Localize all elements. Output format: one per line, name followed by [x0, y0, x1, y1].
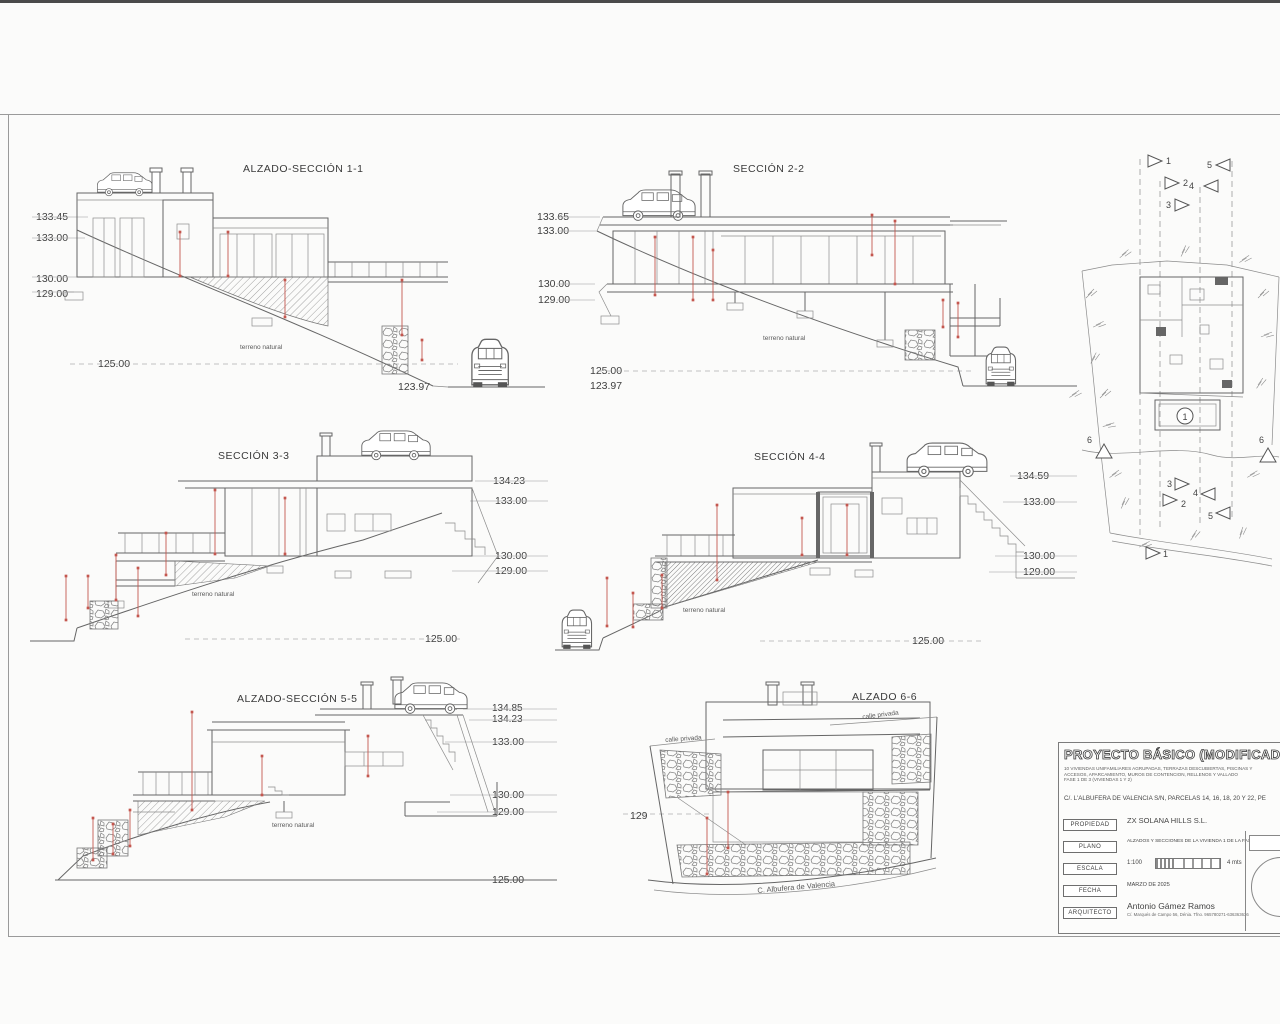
- titleblock-row-escala: ESCALA 1:100 4 mts: [1063, 857, 1117, 875]
- terrain-slope: [597, 231, 963, 386]
- sheet-frame-top: [0, 114, 1280, 115]
- stone-retaining-wall: [90, 601, 118, 629]
- terrain-slope: [77, 230, 433, 386]
- car-icon: [623, 190, 695, 220]
- section-3-drawing: [30, 428, 550, 656]
- marker-number: 2: [1181, 499, 1186, 509]
- car-icon: [395, 683, 467, 713]
- marker-number: 2: [1183, 178, 1188, 188]
- car-icon: [472, 339, 508, 387]
- terrain-hatch: [665, 562, 818, 607]
- car-icon: [562, 610, 591, 649]
- stone-wall: [863, 792, 918, 845]
- titleblock-row-propiedad: PROPIEDAD ZX SOLANA HILLS S.L.: [1063, 813, 1117, 831]
- marker-number: 3: [1167, 479, 1172, 489]
- marker-number: 3: [1166, 200, 1171, 210]
- marker-number: 6: [1087, 435, 1092, 445]
- red-dimensions: [655, 215, 958, 337]
- stone-wall: [892, 734, 931, 784]
- car-icon: [907, 443, 987, 477]
- titleblock-divider: [1245, 831, 1246, 931]
- stone-wall: [651, 558, 667, 608]
- terrace-railing: [143, 772, 208, 795]
- plano-value: ALZADOS Y SECCIONES DE LA VIVIENDA 1 DE …: [1127, 839, 1260, 844]
- titleblock-row-arquitecto: ARQUITECTO Antonio Gámez Ramos C/. Marqu…: [1063, 901, 1117, 919]
- car-icon: [362, 431, 430, 460]
- stair-shaft: [950, 284, 1000, 356]
- car-icon: [97, 173, 152, 196]
- drawing-sheet: ALZADO-SECCIÓN 1-1 133.45 133.00 130.00 …: [0, 0, 1280, 1024]
- fecha-value: MARZO DE 2025: [1127, 882, 1170, 888]
- stone-wall: [633, 604, 663, 620]
- section-2-drawing: [555, 158, 1077, 400]
- marker-number: 1: [1166, 156, 1171, 166]
- site-plan: 1 1 2 3 4 5 3 2 4 5 1 6 6: [1082, 145, 1280, 570]
- stone-base: [677, 842, 910, 877]
- retaining-l-wall: [405, 782, 497, 816]
- section-4-drawing: [555, 428, 1080, 658]
- sheet-frame-bottom: [8, 936, 1280, 937]
- scan-edge-bar: [0, 0, 1280, 3]
- titleblock-stamp-circle: [1251, 857, 1280, 917]
- terrain-slope: [77, 513, 442, 628]
- project-title: PROYECTO BÁSICO (MODIFICADO 1): [1064, 747, 1280, 762]
- pool: 1: [1155, 400, 1220, 430]
- stairs: [423, 715, 495, 812]
- vegetation-ticks: [1069, 245, 1274, 551]
- terrain-hatch: [190, 277, 328, 326]
- propiedad-value: ZX SOLANA HILLS S.L.: [1127, 816, 1207, 825]
- escala-mts: 4 mts: [1227, 860, 1242, 866]
- terrain-hatch: [138, 801, 265, 835]
- chimney-icon: [150, 168, 162, 193]
- stone-wall: [660, 750, 721, 798]
- scale-bar: [1155, 858, 1221, 869]
- section-6-drawing: [618, 662, 950, 912]
- section-cut-lines: [1140, 159, 1232, 535]
- stone-retaining-wall: [905, 330, 935, 360]
- house-plan: [1140, 277, 1243, 397]
- section-1-drawing: [30, 158, 545, 400]
- project-address: C/. L'ALBUFERA DE VALENCIA S/N, PARCELAS…: [1064, 795, 1266, 802]
- marker-number: 5: [1207, 160, 1212, 170]
- marker-number: 1: [1163, 549, 1168, 559]
- marker-number: 4: [1193, 488, 1198, 498]
- fecha-label: FECHA: [1063, 885, 1117, 897]
- stone-retaining-wall: [382, 326, 408, 374]
- marker-number: 5: [1208, 511, 1213, 521]
- car-icon: [986, 347, 1015, 386]
- terrace-railing: [335, 262, 437, 277]
- titleblock-row-fecha: FECHA MARZO DE 2025: [1063, 879, 1117, 897]
- terrain-hatch: [175, 561, 270, 586]
- pool-number: 1: [1182, 412, 1187, 422]
- propiedad-label: PROPIEDAD: [1063, 819, 1117, 831]
- arquitecto-value: Antonio Gámez Ramos: [1127, 901, 1215, 911]
- terrace-railing: [125, 533, 210, 553]
- escala-value: 1:100: [1127, 860, 1142, 866]
- section-5-drawing: [25, 652, 560, 902]
- project-description: 10 VIVIENDAS UNIFAMILIARES AGRUPADAS, TE…: [1064, 766, 1252, 783]
- arquitecto-label: ARQUITECTO: [1063, 907, 1117, 919]
- plano-label: PLANO: [1063, 841, 1117, 853]
- stone-retaining-wall: [77, 848, 107, 868]
- chimney-icon: [181, 168, 193, 193]
- marker-number: 4: [1189, 181, 1194, 191]
- stairs: [960, 480, 1075, 578]
- title-block: PROYECTO BÁSICO (MODIFICADO 1) 10 VIVIEN…: [1058, 742, 1280, 934]
- terrace-railing: [667, 535, 723, 556]
- marker-number: 6: [1259, 435, 1264, 445]
- arquitecto-contact: C/. Marqués de Campo 56, Dénia. Tfno. 96…: [1127, 912, 1249, 917]
- titleblock-row-plano: PLANO ALZADOS Y SECCIONES DE LA VIVIENDA…: [1063, 835, 1117, 853]
- escala-label: ESCALA: [1063, 863, 1117, 875]
- sheet-frame-left: [8, 114, 9, 936]
- titleblock-stamp-box: [1249, 835, 1280, 851]
